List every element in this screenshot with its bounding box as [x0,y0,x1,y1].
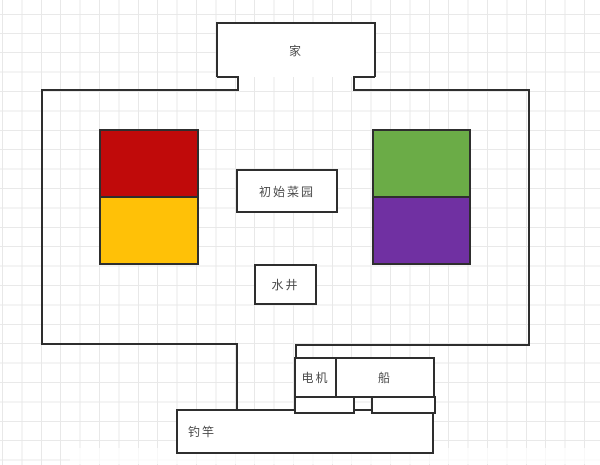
fishing-rod-room: 钓竿 [176,409,434,454]
motor-room: 电机 [296,359,337,396]
dock-pier-left [294,396,355,414]
well-sign: 水井 [254,264,317,305]
well-label: 水井 [271,276,299,293]
motor-label: 电机 [301,369,329,386]
home-label: 家 [217,23,375,77]
boat-room: 船 [337,359,433,396]
dock-pier-right [371,396,436,414]
garden-label: 初始菜园 [259,183,315,200]
crop-block-amber [100,197,198,264]
farm-map-canvas: 家 初始菜园 水井 钓竿 电机 船 [0,0,600,465]
fishing-rod-label: 钓竿 [188,423,216,440]
crop-block-purple [373,197,470,264]
garden-sign: 初始菜园 [236,169,338,213]
crop-block-red [100,130,198,197]
boat-label: 船 [378,369,392,386]
dock-rooms: 电机 船 [294,357,435,398]
crop-block-green [373,130,470,197]
